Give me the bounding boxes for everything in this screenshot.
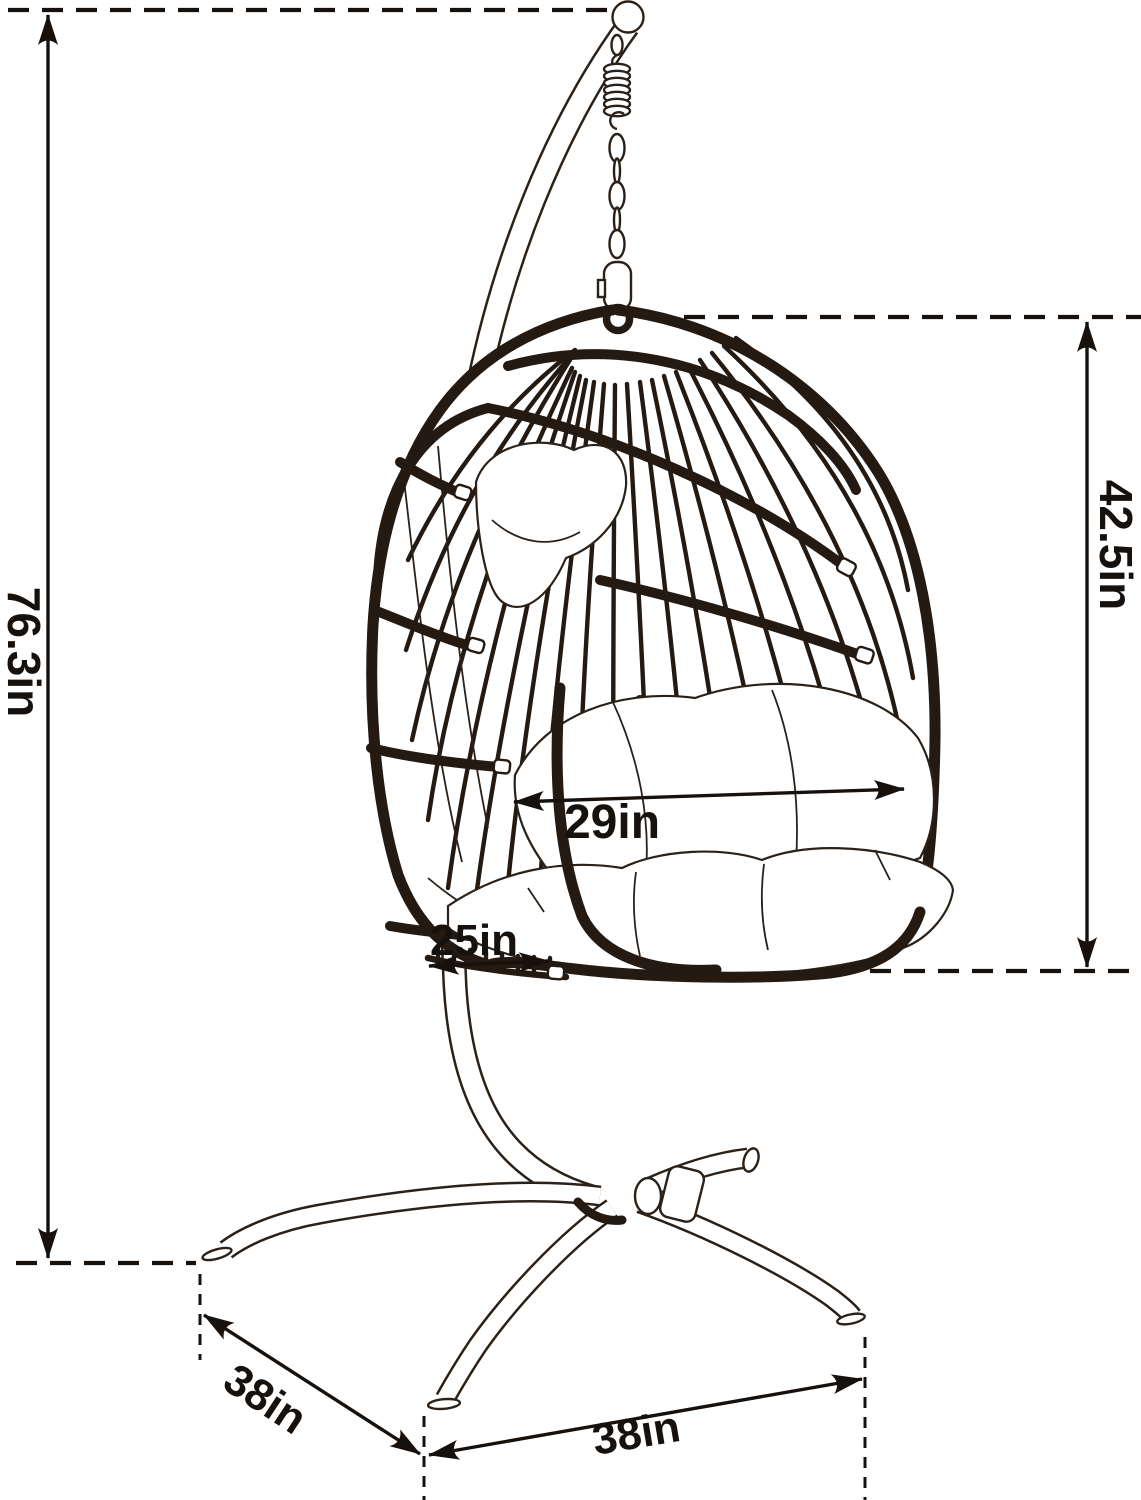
- label-base-width: 38in: [589, 1402, 684, 1465]
- band-clamp: [548, 965, 565, 979]
- label-chair-height: 42.5in: [1090, 480, 1141, 610]
- chain-link-edge: [614, 159, 620, 184]
- chain-link: [610, 182, 625, 210]
- dimension-diagram: 76.3in 42.5in 29in 25in 38in 38in: [0, 0, 1141, 1500]
- rear-left-leg-cap: [201, 1245, 232, 1262]
- spring-coil: [604, 106, 630, 116]
- carabiner: [604, 262, 631, 310]
- hanging-hardware: [598, 35, 631, 310]
- pole-ball-finial: [613, 2, 644, 33]
- label-overall-height: 76.3in: [0, 587, 50, 717]
- front-left-leg-cap: [428, 1398, 461, 1410]
- carabiner-latch: [598, 280, 605, 297]
- label-base-depth: 38in: [215, 1355, 315, 1444]
- label-seat-depth: 25in: [430, 916, 518, 965]
- band-clamp: [466, 637, 485, 654]
- chain-link-edge: [614, 208, 620, 233]
- band-clamp: [493, 759, 510, 774]
- front-left-leg: [445, 1208, 612, 1399]
- hub-pivot-cylinder: [635, 1178, 661, 1214]
- egg-chair: [371, 308, 953, 980]
- egg-chair-diagram-canvas: 76.3in 42.5in 29in 25in 38in 38in: [0, 0, 1141, 1500]
- chain-link: [610, 230, 625, 258]
- top-hook-link: [612, 35, 623, 55]
- label-chair-width: 29in: [564, 796, 660, 849]
